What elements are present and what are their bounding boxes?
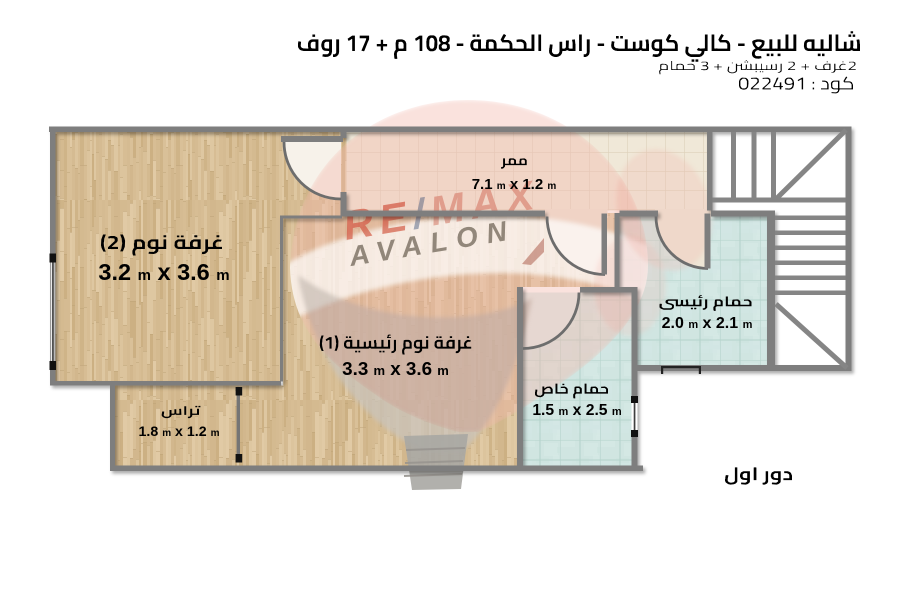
svg-text:1.5 m x 2.5 m: 1.5 m x 2.5 m	[532, 402, 622, 419]
svg-text:3.2 m x 3.6 m: 3.2 m x 3.6 m	[98, 259, 229, 285]
svg-text:3.3 m x 3.6 m: 3.3 m x 3.6 m	[342, 358, 449, 379]
svg-text:7.1 m x 1.2 m: 7.1 m x 1.2 m	[472, 176, 557, 193]
svg-text:1.8 m x 1.2 m: 1.8 m x 1.2 m	[139, 424, 220, 440]
svg-text:2.0 m x 2.1 m: 2.0 m x 2.1 m	[662, 315, 753, 332]
